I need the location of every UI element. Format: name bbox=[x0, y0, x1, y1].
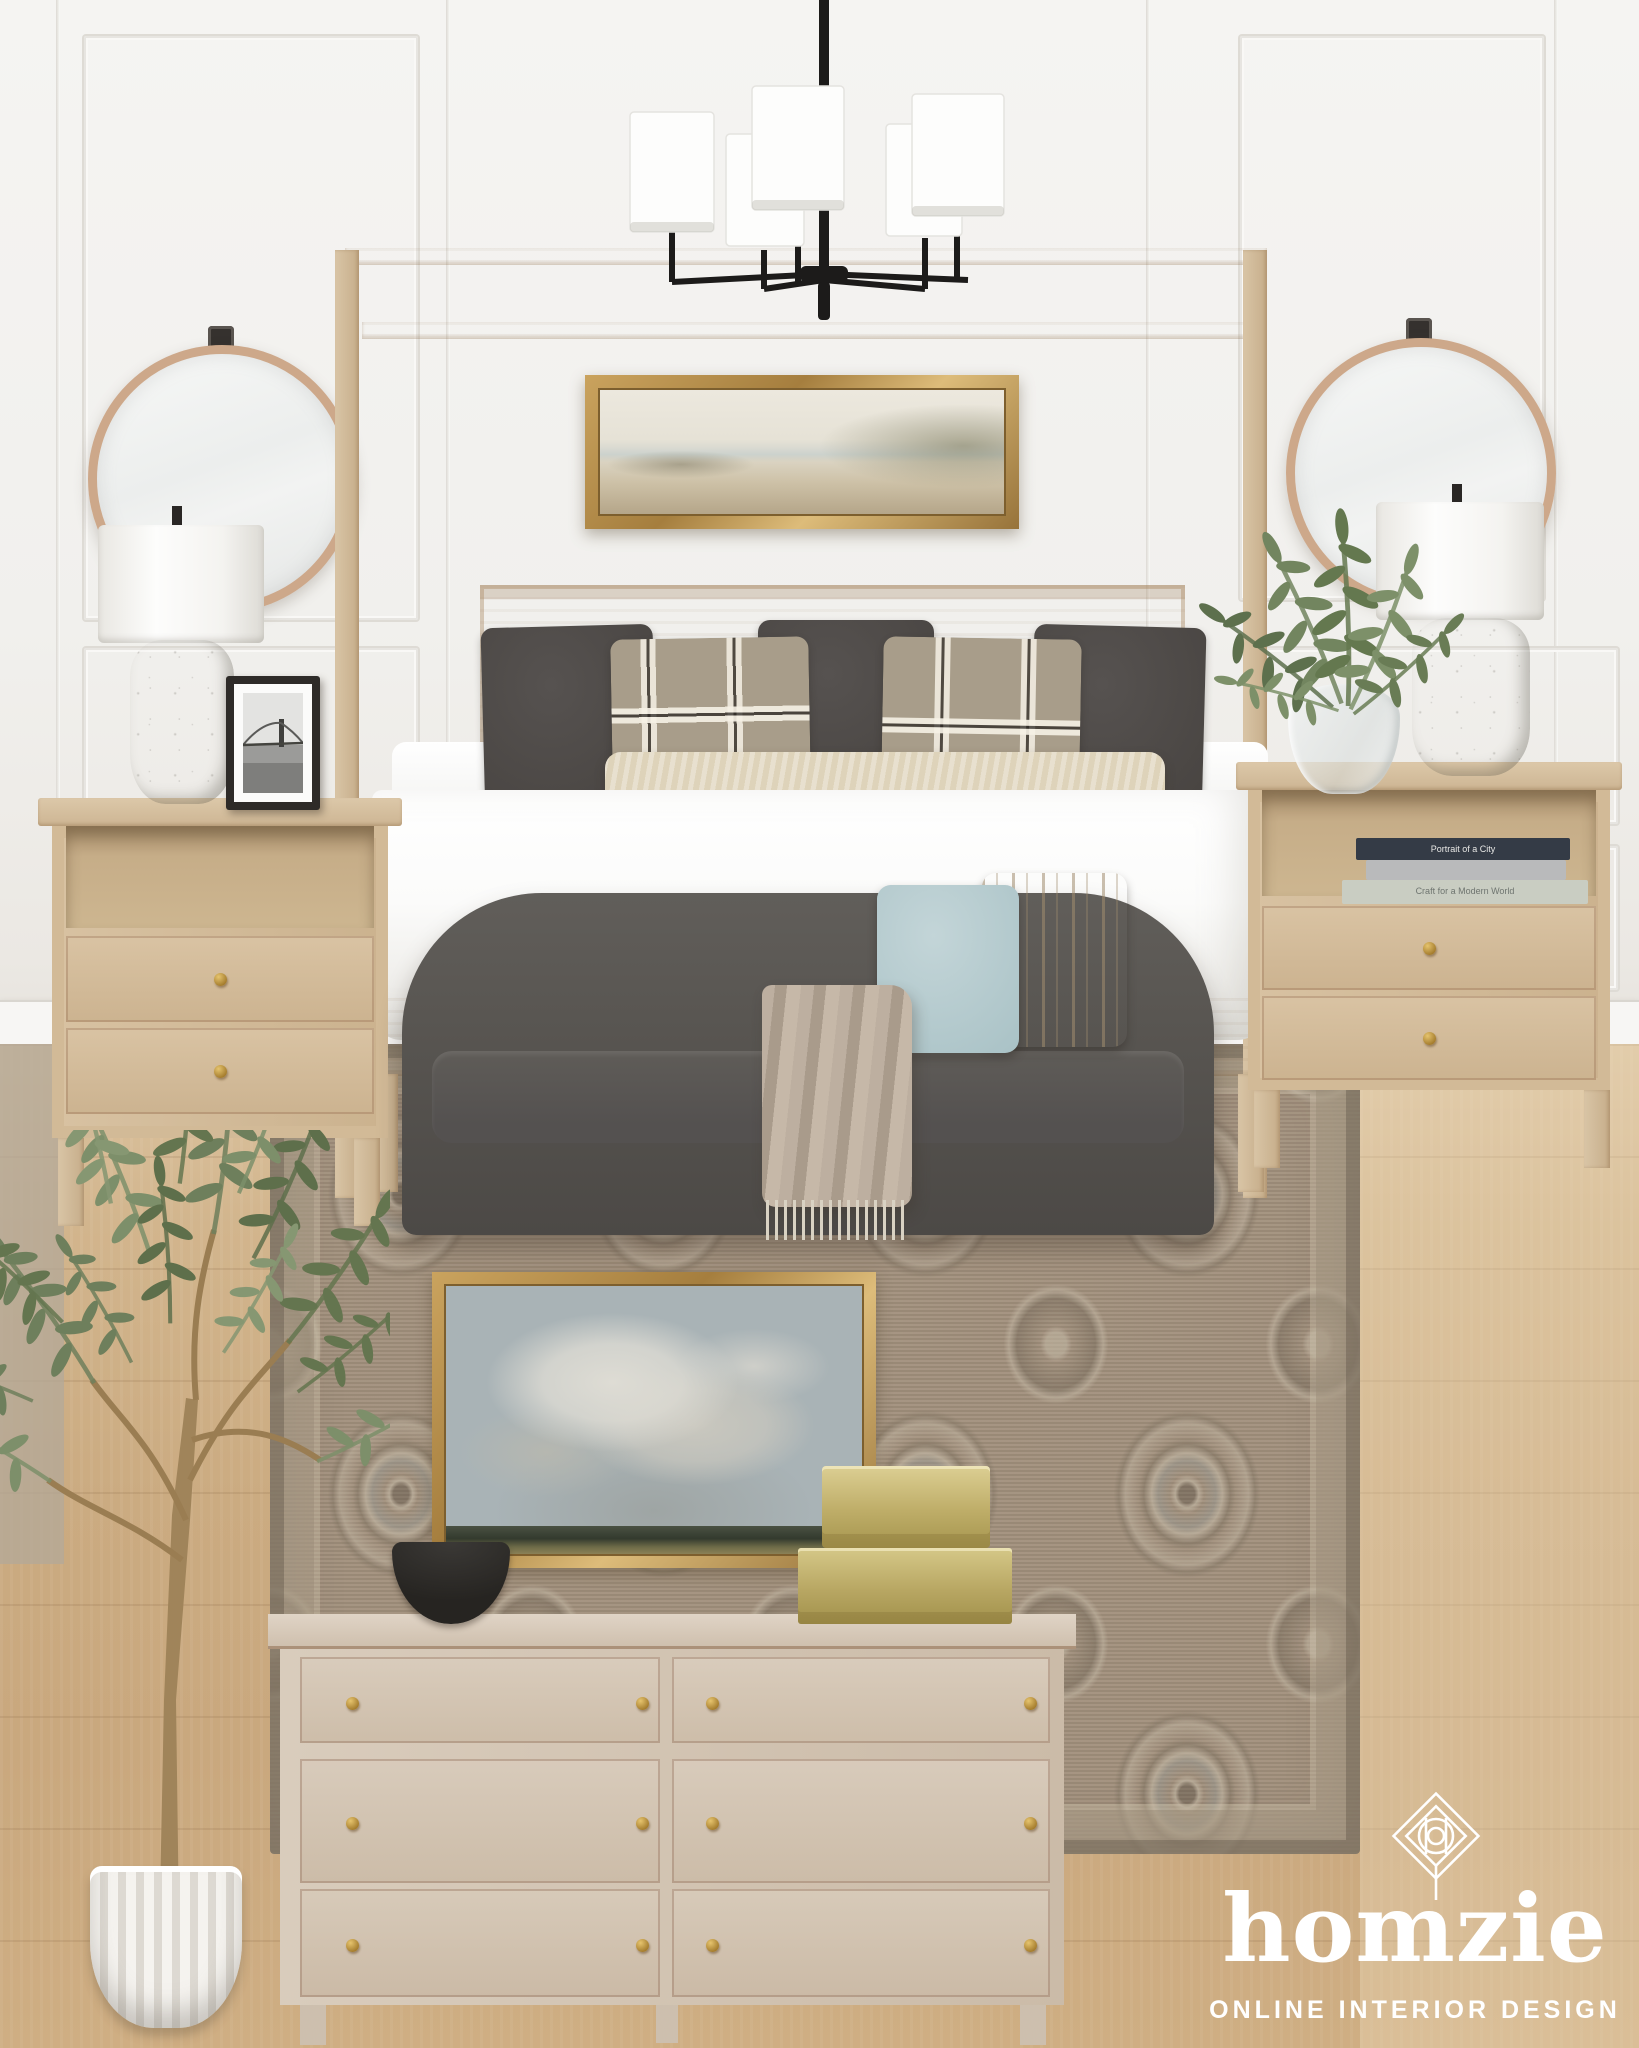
nightstand-right-body: Portrait of a City Craft for a Modern Wo… bbox=[1248, 790, 1610, 1090]
brass-box-bottom bbox=[798, 1548, 1012, 1624]
dresser-drawer bbox=[672, 1657, 1050, 1743]
dresser-body bbox=[280, 1649, 1064, 2005]
nightstand-right-shelf: Portrait of a City Craft for a Modern Wo… bbox=[1262, 790, 1596, 896]
cloud-art-frame bbox=[432, 1272, 876, 1568]
nightstand-left-drawer bbox=[66, 1028, 374, 1114]
nightstand-right-drawer bbox=[1262, 906, 1596, 990]
nightstand-left-body bbox=[52, 826, 388, 1138]
moodboard: Portrait of a City Craft for a Modern Wo… bbox=[0, 0, 1639, 2048]
nightstand-left-top bbox=[38, 798, 402, 826]
nightstand-right-leg bbox=[1254, 1090, 1280, 1168]
white-ribbed-planter bbox=[90, 1866, 242, 2028]
drawer-knob bbox=[1024, 1939, 1037, 1952]
drawer-knob bbox=[1024, 1697, 1037, 1710]
glass-vase bbox=[1288, 684, 1400, 794]
nightstand-right-leg bbox=[1584, 1090, 1610, 1168]
brand-tagline: ONLINE INTERIOR DESIGN bbox=[1185, 1996, 1639, 2025]
lamp-left-shade bbox=[98, 525, 264, 643]
dresser-leg bbox=[656, 2005, 678, 2043]
drawer-knob bbox=[636, 1817, 649, 1830]
photo-mat bbox=[234, 684, 312, 802]
beach-art-frame bbox=[585, 375, 1019, 529]
dresser-drawer bbox=[672, 1759, 1050, 1883]
drawer-knob bbox=[636, 1697, 649, 1710]
nightstand-right-drawer bbox=[1262, 996, 1596, 1080]
drawer-knob bbox=[706, 1817, 719, 1830]
lamp-left-stone-base bbox=[130, 640, 234, 804]
cloud-art-canvas bbox=[444, 1284, 864, 1556]
throw-blanket bbox=[762, 985, 912, 1207]
drawer-knob bbox=[1423, 1032, 1436, 1045]
book-gray bbox=[1366, 860, 1566, 880]
drawer-knob bbox=[706, 1939, 719, 1952]
lamp-right-shade bbox=[1376, 502, 1544, 620]
bridge-photo bbox=[243, 693, 303, 793]
book-dark: Portrait of a City bbox=[1356, 838, 1570, 860]
dresser-leg bbox=[1020, 2005, 1046, 2045]
drawer-knob bbox=[1423, 942, 1436, 955]
nightstand-left-shelf bbox=[66, 826, 374, 928]
book-spine-text: Craft for a Modern World bbox=[1342, 880, 1588, 902]
drawer-knob bbox=[214, 973, 227, 986]
nightstand-left-drawer bbox=[66, 936, 374, 1022]
bridge-photo-frame bbox=[226, 676, 320, 810]
dresser-drawer bbox=[672, 1889, 1050, 1997]
throw-fringe bbox=[766, 1200, 910, 1240]
chandelier bbox=[600, 0, 1020, 340]
book-spine-text: Portrait of a City bbox=[1356, 838, 1570, 860]
book-sage: Craft for a Modern World bbox=[1342, 880, 1588, 904]
brand-name: homzie bbox=[1185, 1874, 1639, 1984]
brass-box-top bbox=[822, 1466, 990, 1548]
drawer-knob bbox=[214, 1065, 227, 1078]
drawer-knob bbox=[1024, 1817, 1037, 1830]
lamp-right-stone-base bbox=[1412, 618, 1530, 776]
drawer-knob bbox=[636, 1939, 649, 1952]
drawer-knob bbox=[706, 1697, 719, 1710]
beach-art-canvas bbox=[598, 388, 1006, 516]
lamp-right-finial bbox=[1452, 484, 1462, 504]
